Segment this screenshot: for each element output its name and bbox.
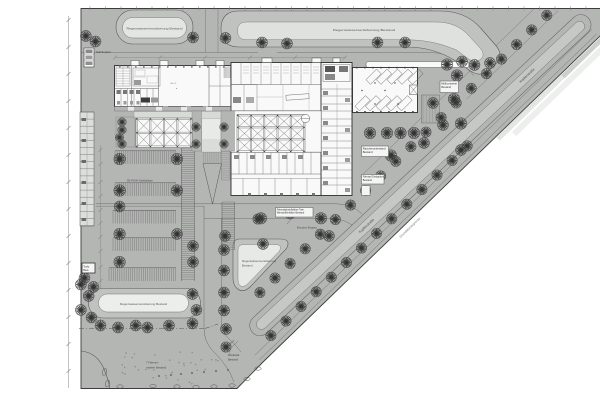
svg-text:Bestand: Bestand: [363, 179, 373, 182]
svg-text:Trafo Bestand: Trafo Bestand: [96, 51, 112, 54]
svg-text:Regenwasserversickerung Bestan: Regenwasserversickerung Bestand: [333, 28, 395, 32]
svg-text:Besucher Eingang: Besucher Eingang: [297, 227, 317, 230]
svg-text:Wertstoffbehälter Bestand: Wertstoffbehälter Bestand: [277, 212, 305, 215]
svg-text:Regenwasserversickerung Bestan: Regenwasserversickerung Bestand: [120, 302, 168, 306]
svg-text:7 Fahnen-: 7 Fahnen-: [146, 361, 159, 365]
svg-text:HALLE: HALLE: [170, 82, 177, 85]
svg-text:Müllcontainer: Müllcontainer: [441, 81, 457, 85]
svg-text:Bestand: Bestand: [242, 264, 253, 268]
svg-text:masten Bestand: masten Bestand: [146, 366, 167, 370]
svg-text:Raucherunterstand: Raucherunterstand: [363, 146, 386, 150]
svg-text:Bestand: Bestand: [228, 358, 238, 362]
svg-text:Bestand: Bestand: [441, 85, 451, 89]
svg-text:Best.: Best.: [83, 268, 89, 272]
svg-text:Regenwasserversickerung: Regenwasserversickerung: [242, 259, 276, 263]
svg-text:Bestand: Bestand: [363, 150, 373, 154]
svg-text:Regenwasserversickerung Bestan: Regenwasserversickerung Bestand: [127, 26, 183, 30]
svg-text:95 PKW-Stellplätze: 95 PKW-Stellplätze: [127, 179, 153, 183]
svg-text:Trafo: Trafo: [83, 265, 90, 269]
